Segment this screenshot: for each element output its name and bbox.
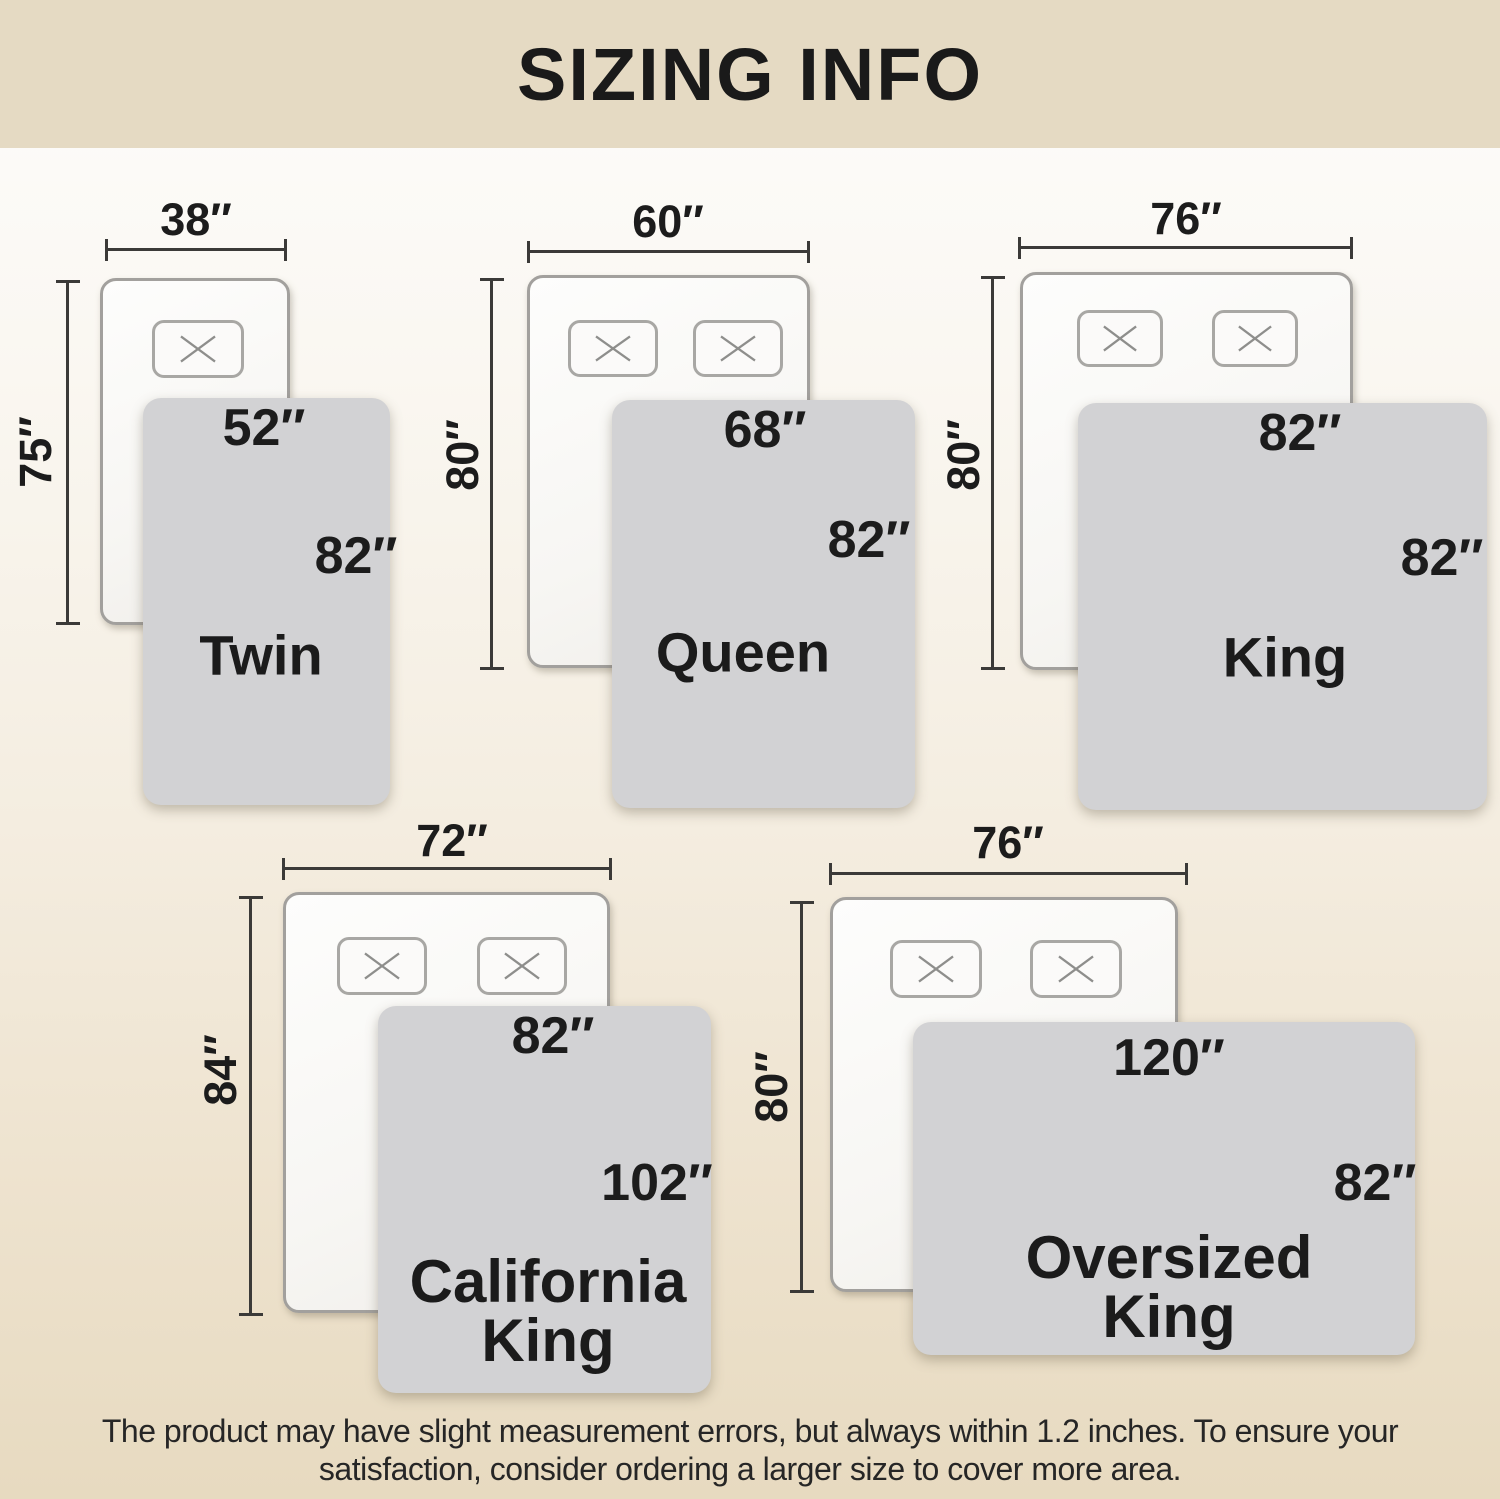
size-name: Queen <box>656 626 830 681</box>
pillow-icon <box>1030 940 1122 998</box>
size-name-line: Twin <box>199 629 322 684</box>
disclaimer-line: satisfaction, consider ordering a larger… <box>0 1450 1500 1488</box>
length-dimension-line <box>249 896 252 1316</box>
pillow-icon <box>1077 310 1163 367</box>
bed-width-label: 76″ <box>972 817 1044 869</box>
size-name-line: King <box>1026 1288 1313 1347</box>
pillow-icon <box>477 937 567 995</box>
size-name-line: Queen <box>656 626 830 681</box>
width-dimension-line <box>1018 246 1353 249</box>
size-name-line: King <box>410 1312 687 1371</box>
size-name: Oversized King <box>1026 1229 1313 1347</box>
bed-width-label: 76″ <box>1150 193 1222 245</box>
header-banner: SIZING INFO <box>0 0 1500 148</box>
blanket-length-label: 82″ <box>1401 528 1484 588</box>
blanket-length-label: 82″ <box>1334 1153 1417 1213</box>
blanket-width-label: 120″ <box>1113 1028 1225 1088</box>
blanket-shape <box>143 398 390 805</box>
width-dimension-line <box>105 248 287 251</box>
blanket-length-label: 82″ <box>315 526 398 586</box>
length-dimension-line <box>800 901 803 1293</box>
pillow-icon <box>890 940 982 998</box>
bed-length-label: 80″ <box>746 1051 798 1123</box>
blanket-width-label: 52″ <box>223 398 306 458</box>
pillow-icon <box>1212 310 1298 367</box>
width-dimension-line <box>282 867 612 870</box>
blanket-length-label: 82″ <box>828 510 911 570</box>
length-dimension-line <box>991 276 994 670</box>
blanket-width-label: 82″ <box>512 1006 595 1066</box>
page-title: SIZING INFO <box>517 32 983 117</box>
pillow-icon <box>152 320 244 378</box>
size-name: California King <box>410 1253 687 1371</box>
width-dimension-line <box>527 250 810 253</box>
blanket-shape <box>1078 403 1487 810</box>
bed-length-label: 84″ <box>195 1034 247 1106</box>
size-name: King <box>1223 631 1347 686</box>
disclaimer-text: The product may have slight measurement … <box>0 1412 1500 1488</box>
bed-length-label: 80″ <box>938 419 990 491</box>
bed-width-label: 38″ <box>160 194 232 246</box>
width-dimension-line <box>829 872 1188 875</box>
size-name-line: California <box>410 1253 687 1312</box>
size-name: Twin <box>199 629 322 684</box>
bed-length-label: 80″ <box>437 419 489 491</box>
size-name-line: Oversized <box>1026 1229 1313 1288</box>
pillow-icon <box>337 937 427 995</box>
blanket-shape <box>612 400 915 808</box>
size-name-line: King <box>1223 631 1347 686</box>
bed-width-label: 60″ <box>632 196 704 248</box>
blanket-width-label: 68″ <box>724 400 807 460</box>
length-dimension-line <box>490 278 493 670</box>
disclaimer-line: The product may have slight measurement … <box>0 1412 1500 1450</box>
bed-length-label: 75″ <box>10 416 62 488</box>
pillow-icon <box>693 320 783 377</box>
blanket-length-label: 102″ <box>601 1153 713 1213</box>
blanket-width-label: 82″ <box>1259 403 1342 463</box>
bed-width-label: 72″ <box>416 815 488 867</box>
length-dimension-line <box>66 280 69 625</box>
pillow-icon <box>568 320 658 377</box>
